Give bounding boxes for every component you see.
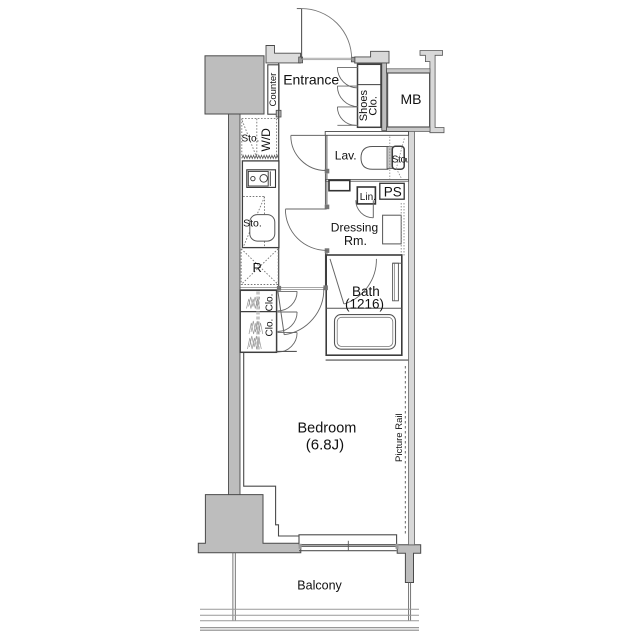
svg-text:(1216): (1216) [345,297,384,312]
svg-text:MB: MB [401,91,422,107]
svg-text:Balcony: Balcony [297,579,342,593]
svg-text:Clo.: Clo. [367,96,379,116]
svg-text:Clo.: Clo. [264,319,275,337]
svg-text:Rm.: Rm. [344,234,367,248]
svg-text:Dressing: Dressing [331,221,378,235]
svg-text:R: R [253,260,262,275]
svg-text:(6.8J): (6.8J) [306,437,344,454]
svg-text:Picture Rail: Picture Rail [394,413,405,462]
svg-text:Clo.: Clo. [264,294,275,312]
svg-text:Sto.: Sto. [243,218,262,230]
svg-text:Counter: Counter [268,73,279,107]
svg-text:Lav.: Lav. [335,149,357,163]
svg-text:W/D: W/D [259,128,273,152]
svg-text:Entrance: Entrance [283,71,339,87]
svg-text:PS: PS [384,185,402,200]
svg-text:Bedroom: Bedroom [298,421,357,437]
svg-text:Sto.: Sto. [242,134,260,145]
